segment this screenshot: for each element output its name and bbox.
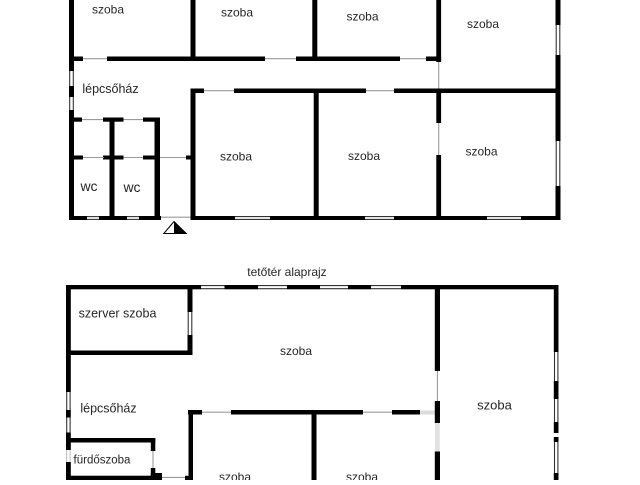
svg-text:szoba: szoba (465, 145, 497, 159)
svg-text:szoba: szoba (348, 149, 380, 163)
svg-text:szoba: szoba (219, 470, 251, 480)
svg-text:szoba: szoba (346, 10, 378, 24)
svg-text:lépcsőház: lépcsőház (80, 402, 136, 416)
svg-text:szoba: szoba (280, 344, 312, 358)
svg-text:wc: wc (122, 179, 140, 195)
svg-text:szoba: szoba (346, 470, 378, 480)
svg-text:szerver szoba: szerver szoba (79, 307, 157, 321)
svg-text:wc: wc (79, 178, 97, 194)
svg-text:szoba: szoba (92, 3, 124, 17)
svg-text:szoba: szoba (221, 6, 253, 20)
svg-text:szoba: szoba (220, 150, 252, 164)
svg-text:szoba: szoba (467, 17, 499, 31)
svg-text:lépcsőház: lépcsőház (82, 82, 138, 96)
svg-text:szoba: szoba (477, 398, 512, 413)
svg-text:fürdőszoba: fürdőszoba (74, 455, 132, 467)
svg-text:tetőtér alaprajz: tetőtér alaprajz (247, 265, 326, 279)
